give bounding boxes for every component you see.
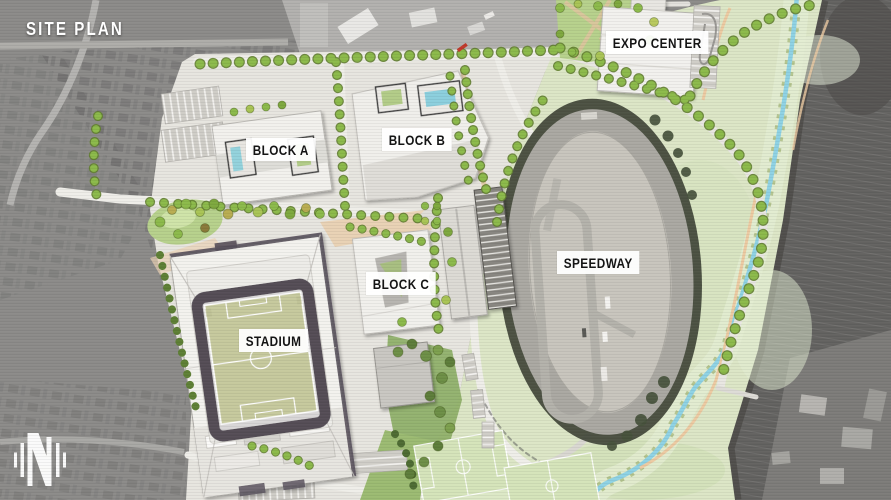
label-expo-center: EXPO CENTER	[606, 31, 708, 54]
site-plan-title: SITE PLAN	[26, 19, 124, 40]
label-block-b: BLOCK B	[382, 128, 452, 151]
label-stadium: STADIUM	[239, 329, 308, 352]
label-block-c: BLOCK C	[366, 272, 436, 295]
site-plan-rendering: SITE PLAN EXPO CENTER BLOCK A BLOCK B BL…	[0, 0, 891, 500]
label-speedway: SPEEDWAY	[557, 251, 639, 274]
site-plan-map	[0, 0, 891, 500]
stadium-pitch	[205, 292, 318, 424]
label-block-a: BLOCK A	[246, 138, 316, 161]
